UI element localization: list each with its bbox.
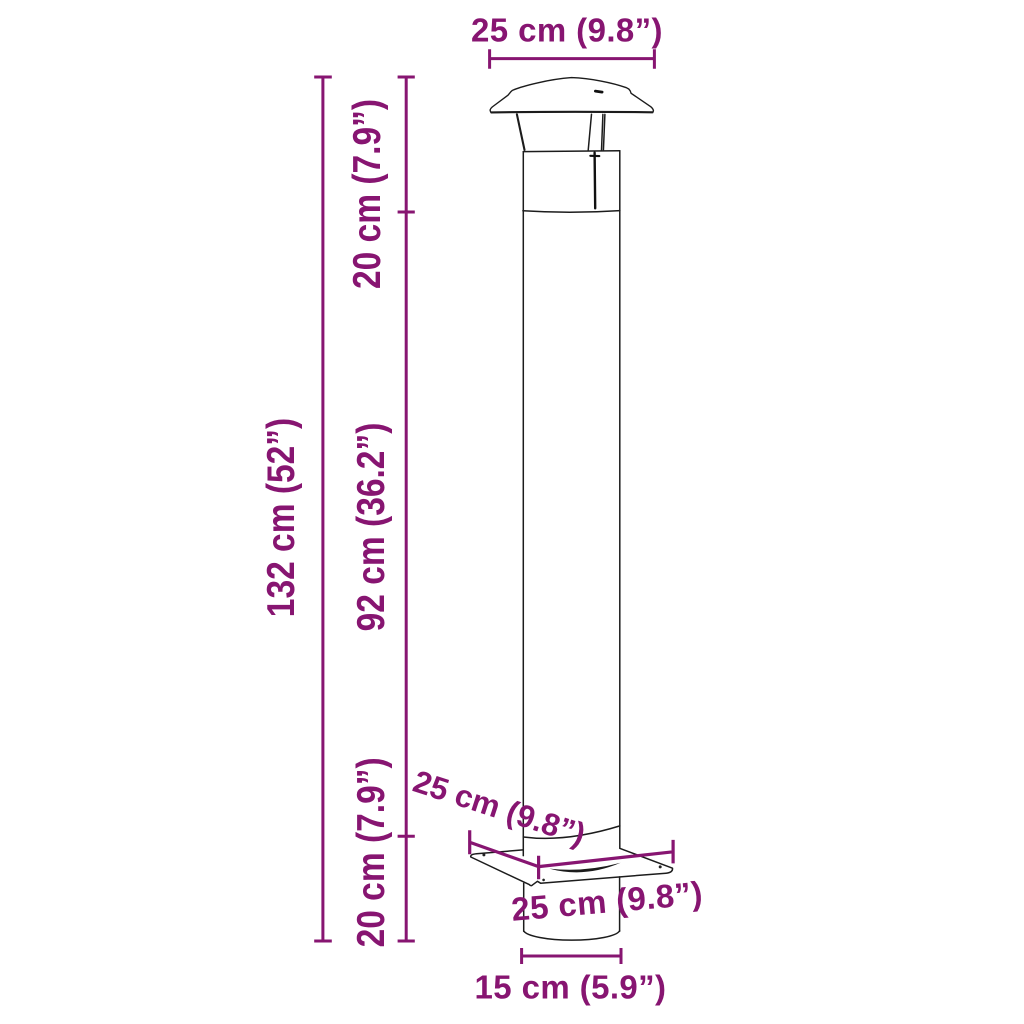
- svg-text:92 cm (36.2”): 92 cm (36.2”): [349, 423, 393, 632]
- svg-text:25 cm (9.8”): 25 cm (9.8”): [471, 12, 663, 49]
- svg-text:20 cm (7.9”): 20 cm (7.9”): [349, 757, 393, 947]
- svg-text:25 cm (9.8”): 25 cm (9.8”): [409, 763, 590, 852]
- svg-text:132 cm (52”): 132 cm (52”): [259, 418, 303, 617]
- svg-text:20 cm (7.9”): 20 cm (7.9”): [345, 99, 389, 289]
- svg-text:15 cm (5.9”): 15 cm (5.9”): [475, 969, 667, 1006]
